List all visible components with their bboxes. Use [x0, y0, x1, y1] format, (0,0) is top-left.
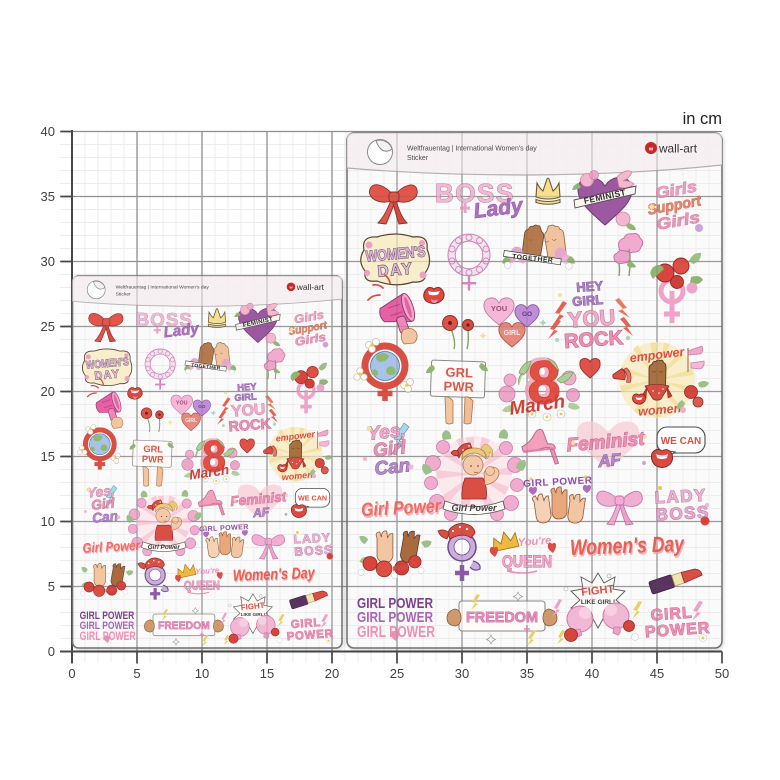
- svg-text:Can: Can: [373, 455, 411, 480]
- svg-text:wall-art: wall-art: [296, 282, 325, 292]
- svg-text:25: 25: [390, 666, 404, 681]
- svg-text:Women's Day: Women's Day: [232, 565, 315, 585]
- svg-text:Sticker: Sticker: [116, 291, 131, 297]
- svg-text:PWR: PWR: [142, 454, 164, 465]
- svg-text:You're: You're: [518, 535, 552, 549]
- svg-text:40: 40: [585, 666, 599, 681]
- svg-text:5: 5: [133, 666, 140, 681]
- svg-text:ROCK: ROCK: [228, 416, 272, 435]
- svg-text:5: 5: [48, 579, 55, 594]
- svg-text:PWR: PWR: [443, 379, 474, 395]
- svg-text:50: 50: [715, 666, 729, 681]
- svg-text:w: w: [648, 146, 654, 152]
- svg-text:YOU: YOU: [491, 304, 507, 313]
- svg-text:Girl Power: Girl Power: [360, 496, 442, 521]
- svg-text:Weltfrauentag | International: Weltfrauentag | International Women's da…: [407, 146, 537, 153]
- svg-text:Girl Power: Girl Power: [82, 538, 141, 556]
- svg-text:Girl Power: Girl Power: [451, 503, 497, 513]
- svg-text:0: 0: [48, 644, 55, 659]
- svg-text:Weltfrauentag | International: Weltfrauentag | International Women's da…: [116, 285, 210, 291]
- svg-text:GRL: GRL: [143, 444, 163, 455]
- svg-text:25: 25: [41, 319, 55, 334]
- svg-text:GIRL: GIRL: [504, 330, 521, 337]
- svg-text:10: 10: [41, 514, 55, 529]
- svg-text:WE CAN: WE CAN: [661, 436, 702, 447]
- svg-text:Sticker: Sticker: [407, 155, 429, 162]
- svg-text:Can: Can: [91, 508, 118, 526]
- svg-text:30: 30: [455, 666, 469, 681]
- svg-text:40: 40: [41, 124, 55, 139]
- svg-text:45: 45: [650, 666, 664, 681]
- svg-text:YOU: YOU: [176, 401, 188, 407]
- svg-text:15: 15: [41, 449, 55, 464]
- svg-text:35: 35: [41, 189, 55, 204]
- svg-text:30: 30: [41, 254, 55, 269]
- svg-text:wall-art: wall-art: [658, 142, 698, 156]
- svg-text:Women's Day: Women's Day: [570, 531, 686, 560]
- svg-text:20: 20: [325, 666, 339, 681]
- svg-text:Girl Power: Girl Power: [148, 544, 181, 551]
- svg-text:0: 0: [68, 666, 75, 681]
- svg-text:ROCK: ROCK: [563, 327, 624, 353]
- svg-text:in cm: in cm: [683, 110, 722, 128]
- svg-text:35: 35: [520, 666, 534, 681]
- svg-text:DAY: DAY: [94, 368, 121, 382]
- svg-text:GIRL: GIRL: [185, 418, 197, 424]
- svg-text:AF: AF: [596, 450, 622, 471]
- svg-text:You're: You're: [195, 566, 220, 577]
- svg-text:WE CAN: WE CAN: [298, 494, 327, 503]
- svg-text:15: 15: [260, 666, 274, 681]
- svg-text:20: 20: [41, 384, 55, 399]
- svg-text:10: 10: [195, 666, 209, 681]
- svg-text:DAY: DAY: [377, 260, 414, 280]
